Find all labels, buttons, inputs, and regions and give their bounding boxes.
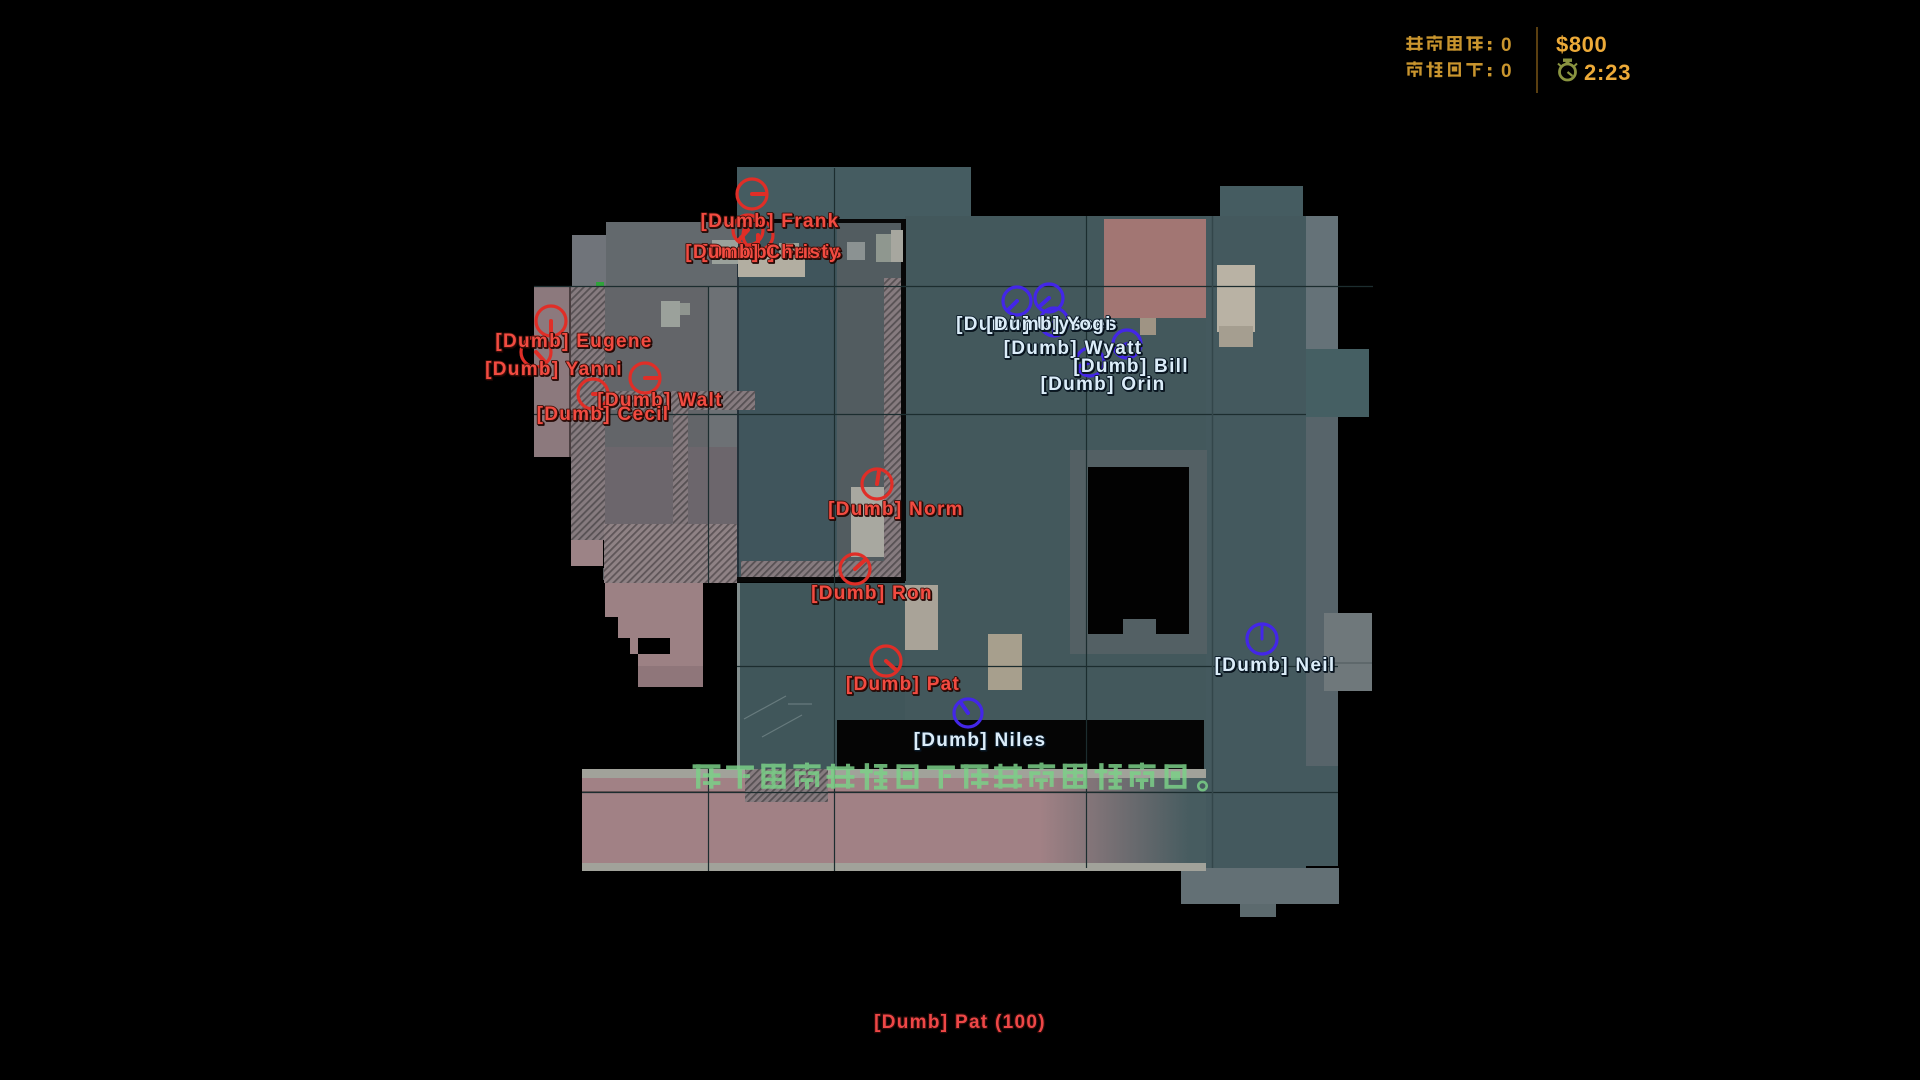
svg-text:[Dumb] Eugene: [Dumb] Eugene (495, 331, 652, 352)
svg-text:[Dumb] Yanni: [Dumb] Yanni (485, 359, 623, 380)
svg-text:$800: $800 (1556, 32, 1607, 57)
svg-text:[Dumb] Norm: [Dumb] Norm (828, 499, 964, 520)
svg-text:[Dumb] Orin: [Dumb] Orin (1040, 374, 1165, 395)
svg-text:[Dumb] Pat: [Dumb] Pat (846, 674, 960, 695)
svg-text:[Dumb] Niles: [Dumb] Niles (914, 730, 1047, 751)
svg-text:[Dumb] Pat (100): [Dumb] Pat (100) (874, 1012, 1046, 1033)
svg-text:0: 0 (1501, 35, 1512, 56)
svg-text:[Dumb] Cecil: [Dumb] Cecil (537, 404, 670, 425)
svg-text:2:23: 2:23 (1584, 60, 1631, 85)
svg-text:[Dumb] Neil: [Dumb] Neil (1215, 655, 1336, 676)
svg-text:[Dumb] Christy: [Dumb] Christy (685, 242, 840, 263)
svg-text:[Dumb] Frank: [Dumb] Frank (700, 211, 839, 232)
svg-text:0: 0 (1501, 61, 1512, 82)
svg-text:[Dumb] Yogi: [Dumb] Yogi (986, 314, 1111, 335)
svg-text:[Dumb] Ron: [Dumb] Ron (811, 583, 933, 604)
